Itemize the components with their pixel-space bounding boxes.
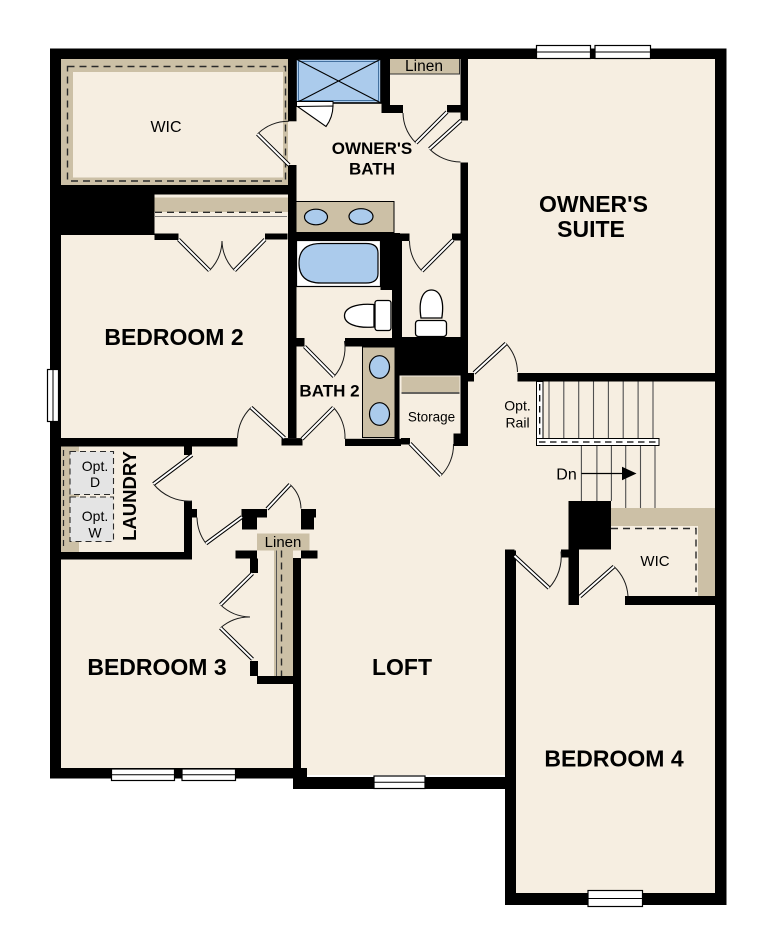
- svg-text:WIC: WIC: [640, 553, 669, 570]
- svg-text:BATH: BATH: [349, 160, 395, 179]
- svg-text:Opt.: Opt.: [82, 458, 108, 474]
- svg-text:W: W: [88, 525, 102, 541]
- svg-text:Opt.: Opt.: [82, 508, 108, 524]
- svg-text:LAUNDRY: LAUNDRY: [119, 450, 140, 540]
- svg-text:OWNER'S: OWNER'S: [539, 191, 648, 217]
- svg-text:BEDROOM 4: BEDROOM 4: [544, 746, 684, 772]
- svg-text:BATH 2: BATH 2: [299, 382, 359, 401]
- svg-text:Rail: Rail: [505, 415, 529, 431]
- svg-text:WIC: WIC: [150, 119, 181, 136]
- svg-text:Linen: Linen: [405, 58, 443, 75]
- svg-text:BEDROOM 3: BEDROOM 3: [87, 654, 226, 680]
- svg-text:Dn: Dn: [556, 467, 576, 484]
- svg-text:D: D: [90, 474, 100, 490]
- svg-text:BEDROOM 2: BEDROOM 2: [104, 324, 243, 350]
- svg-text:Opt.: Opt.: [504, 398, 530, 414]
- svg-text:Storage: Storage: [408, 410, 455, 425]
- svg-text:OWNER'S: OWNER'S: [332, 139, 413, 158]
- svg-text:Linen: Linen: [265, 534, 302, 551]
- svg-text:LOFT: LOFT: [372, 654, 432, 680]
- svg-text:SUITE: SUITE: [557, 216, 625, 242]
